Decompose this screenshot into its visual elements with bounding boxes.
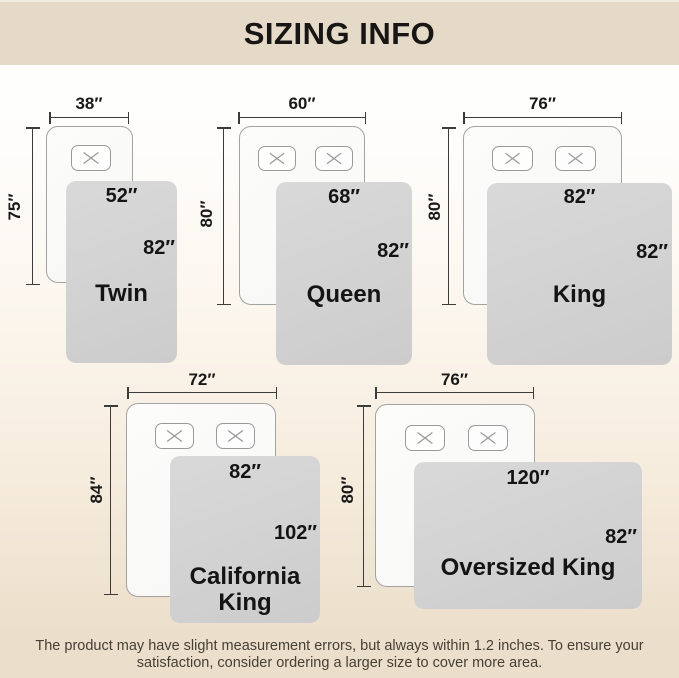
pillow-x-icon xyxy=(555,146,596,171)
width-measure-line xyxy=(49,117,129,118)
size-name-label: Oversized King xyxy=(414,555,642,581)
blanket: 82″ 102″ California King xyxy=(170,456,320,623)
blanket: 68″ 82″ Queen xyxy=(276,182,412,365)
sizing-infographic: SIZING INFO 38″ 75″ 52″ 82″ Twin 60″ 80″ xyxy=(0,0,679,678)
bed-width-label: 38″ xyxy=(49,94,129,116)
size-name-label: King xyxy=(487,282,672,308)
pillow-x-icon xyxy=(216,423,255,449)
blanket-width-label: 82″ xyxy=(170,461,320,484)
pillow-x-icon xyxy=(315,146,353,171)
bed-length-label: 80″ xyxy=(338,455,360,525)
disclaimer-line1: The product may have slight measurement … xyxy=(0,638,679,655)
header-banner: SIZING INFO xyxy=(0,2,679,65)
blanket-width-label: 68″ xyxy=(276,186,412,209)
blanket: 52″ 82″ Twin xyxy=(66,181,177,363)
pillow-x-icon xyxy=(492,146,533,171)
length-measure-line xyxy=(223,127,224,305)
bed-width-label: 60″ xyxy=(238,94,366,116)
pillow-x-icon xyxy=(258,146,296,171)
bed-length-label: 80″ xyxy=(197,179,219,249)
size-name-label: Twin xyxy=(66,281,177,307)
width-measure-line xyxy=(375,392,534,393)
blanket: 120″ 82″ Oversized King xyxy=(414,462,642,609)
blanket-width-label: 120″ xyxy=(414,467,642,490)
pillow-x-icon xyxy=(71,145,111,171)
blanket-length-label: 102″ xyxy=(274,522,317,545)
width-measure-line xyxy=(238,117,366,118)
disclaimer-line2: satisfaction, consider ordering a larger… xyxy=(0,655,679,672)
blanket-length-label: 82″ xyxy=(636,241,668,264)
bed-width-label: 76″ xyxy=(375,370,534,392)
page-title: SIZING INFO xyxy=(244,16,436,52)
length-measure-line xyxy=(110,405,111,595)
length-measure-line xyxy=(32,127,33,285)
blanket-width-label: 52″ xyxy=(66,185,177,208)
blanket-length-label: 82″ xyxy=(377,240,409,263)
blanket-length-label: 82″ xyxy=(143,237,175,260)
width-measure-line xyxy=(127,392,277,393)
bed-width-label: 72″ xyxy=(127,370,277,392)
pillow-x-icon xyxy=(155,423,194,449)
blanket-length-label: 82″ xyxy=(605,526,637,549)
bed-width-label: 76″ xyxy=(463,94,622,116)
size-name-label: Queen xyxy=(276,282,412,308)
bed-length-label: 84″ xyxy=(87,455,109,525)
bed-length-label: 75″ xyxy=(5,172,27,242)
pillow-x-icon xyxy=(468,425,508,451)
length-measure-line xyxy=(363,405,364,587)
blanket-width-label: 82″ xyxy=(487,186,672,209)
size-name-label: California King xyxy=(170,564,320,616)
width-measure-line xyxy=(463,117,622,118)
bed-length-label: 80″ xyxy=(425,172,447,242)
blanket: 82″ 82″ King xyxy=(487,183,672,365)
pillow-x-icon xyxy=(405,425,445,451)
length-measure-line xyxy=(448,127,449,305)
